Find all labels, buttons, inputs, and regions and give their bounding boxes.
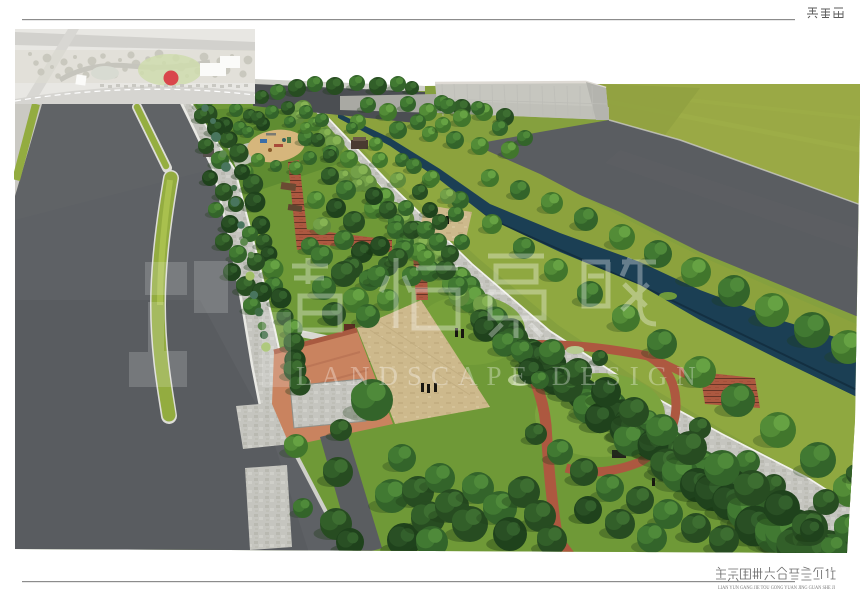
svg-text:LANDSCAPE DESIGN: LANDSCAPE DESIGN	[296, 361, 705, 391]
svg-text:LIAN YUN GANG JIE TOU GONG YUA: LIAN YUN GANG JIE TOU GONG YUAN JING GUA…	[718, 586, 835, 591]
